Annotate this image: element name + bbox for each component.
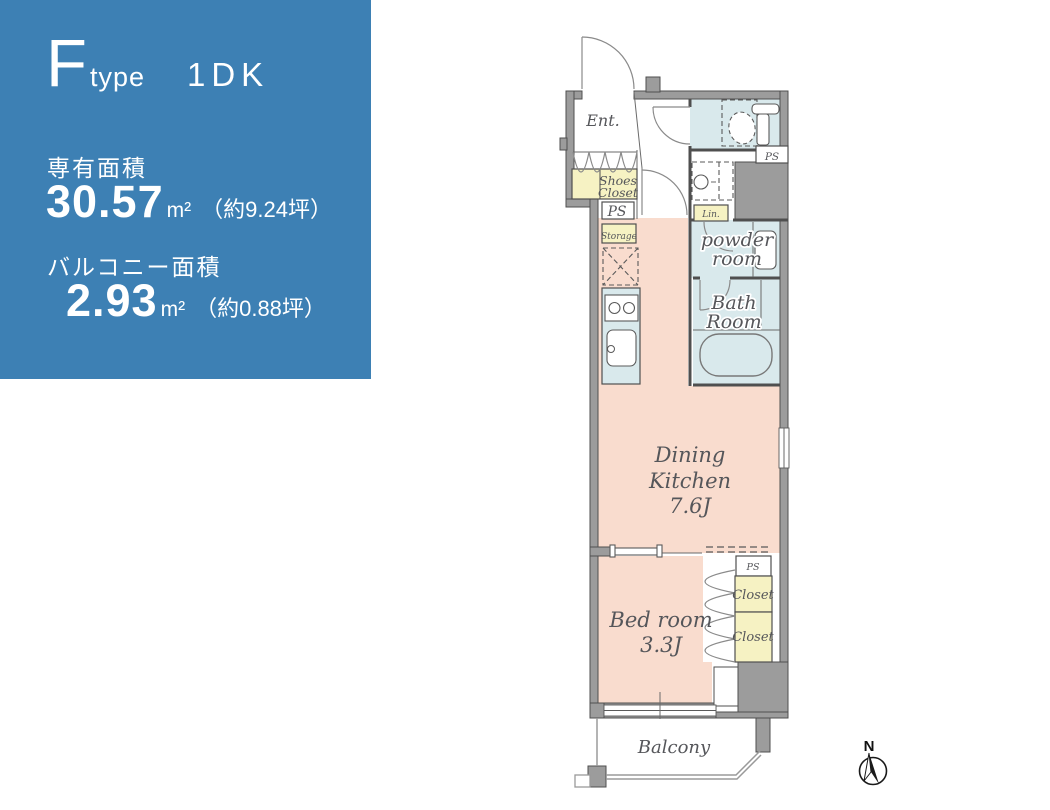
- compass: N: [860, 738, 887, 785]
- shoes-closet-label-2: Closet: [598, 185, 639, 200]
- bath-room-label-2: Room: [705, 311, 761, 333]
- floorplan-sheet: F type 1DK 専有面積 30.57 m² （約9.24坪） バルコニー面…: [0, 0, 1050, 810]
- washer-space: [692, 162, 733, 200]
- entrance-door: [582, 37, 634, 89]
- dk-label-1: Dining: [654, 443, 726, 467]
- bedroom-label-1: Bed room: [608, 608, 712, 632]
- faucet-icon: [608, 346, 615, 353]
- balcony-divider: [575, 775, 590, 787]
- closet-upper-label: Closet: [732, 588, 774, 603]
- balcony-label: Balcony: [637, 737, 711, 758]
- toilet-shelf: [752, 104, 779, 114]
- toilet-tank: [757, 114, 769, 145]
- bedroom-label-2: 3.3J: [640, 633, 683, 657]
- dk-label-2: Kitchen: [648, 469, 731, 493]
- dk-label-3: 7.6J: [669, 494, 712, 518]
- ps-toilet-label: PS: [764, 151, 779, 163]
- linen-label: Lin.: [701, 210, 720, 220]
- toilet-door: [653, 107, 690, 144]
- hall-door: [642, 168, 687, 215]
- dk-side-window: [779, 428, 789, 468]
- powder-room-label-2: room: [712, 248, 762, 270]
- stove: [605, 295, 638, 321]
- closet-lower-label: Closet: [732, 630, 774, 645]
- washer-drain-icon: [694, 175, 708, 189]
- wall-niche: [714, 667, 738, 706]
- compass-n-label: N: [864, 738, 875, 755]
- ps-hall-label: PS: [606, 204, 626, 220]
- storage-label: Storage: [601, 232, 637, 242]
- ent-label: Ent.: [585, 111, 620, 130]
- ps-bedroom-label: PS: [746, 562, 760, 573]
- floorplan-drawing: Ent. Shoes Closet PS Storage Lin. PS pow…: [0, 0, 1050, 810]
